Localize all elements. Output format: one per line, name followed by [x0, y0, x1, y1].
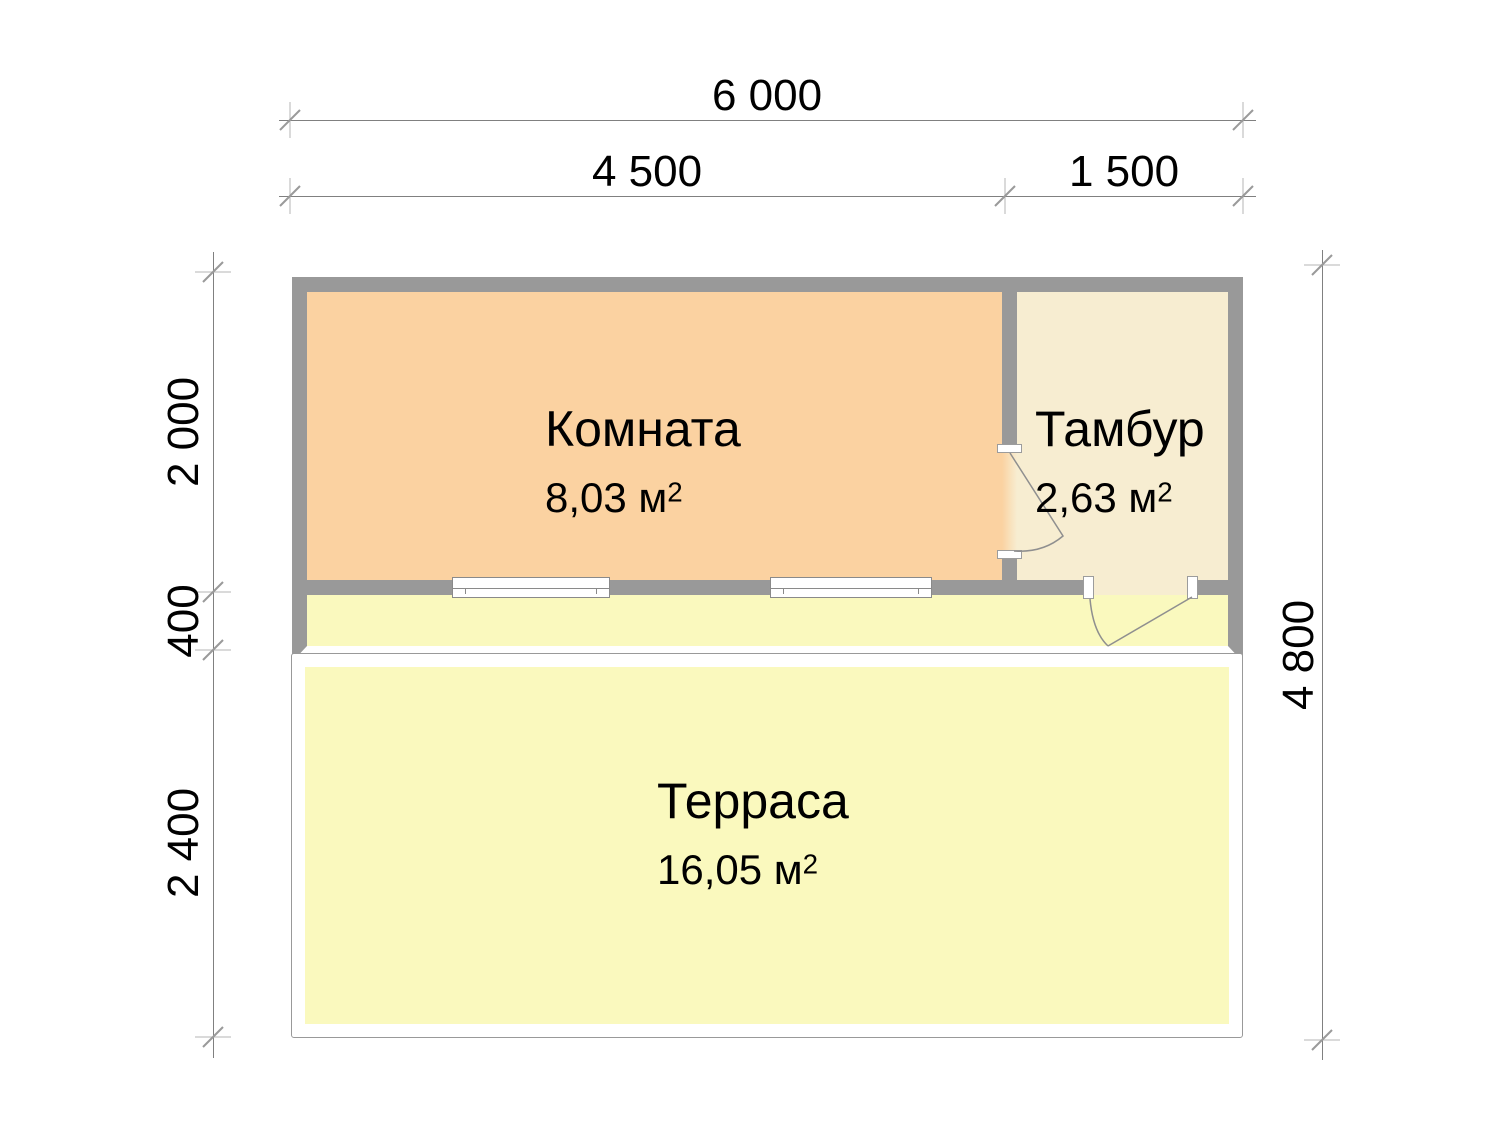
room-area-komnata: 8,03 м2 [545, 477, 683, 519]
area-superscript: 2 [1157, 476, 1172, 507]
window-frame-tick [783, 588, 784, 595]
door-jamb [1187, 576, 1198, 599]
window-frame-tick [596, 588, 597, 595]
dim-label-komnata-depth: 2 000 [162, 377, 206, 487]
wall-left [292, 277, 307, 662]
area-value: 8,03 м [545, 474, 667, 521]
area-superscript: 2 [667, 476, 682, 507]
dim-label-terrace-depth: 2 400 [162, 788, 206, 898]
room-label-tambur: Тамбур [1035, 404, 1205, 454]
wall-right [1228, 277, 1243, 662]
dim-label-komnata-span: 4 500 [592, 150, 702, 194]
dim-label-overall-width: 6 000 [712, 74, 822, 118]
door-jamb [997, 550, 1022, 559]
window-glass-line [771, 588, 931, 589]
floor-plan-canvas: 6 000 4 500 1 500 2 000 400 2 400 4 800 … [0, 0, 1500, 1125]
room-label-terrasa: Терраса [657, 776, 849, 826]
door-opening-tambur-terrace [1093, 579, 1187, 595]
window-frame-tick [465, 588, 466, 595]
window [452, 577, 610, 598]
room-area-terrasa: 16,05 м2 [657, 849, 818, 891]
room-area-tambur: 2,63 м2 [1035, 477, 1173, 519]
porch-strip [307, 595, 1228, 646]
area-value: 2,63 м [1035, 474, 1157, 521]
room-label-komnata: Комната [545, 404, 741, 454]
window [770, 577, 932, 598]
window-frame-tick [918, 588, 919, 595]
area-superscript: 2 [803, 848, 818, 879]
door-opening-komnata-tambur [1002, 453, 1017, 550]
wall-top [292, 277, 1243, 292]
dim-label-tambur-span: 1 500 [1069, 150, 1179, 194]
door-jamb [997, 444, 1022, 453]
area-value: 16,05 м [657, 846, 803, 893]
door-jamb [1083, 576, 1094, 599]
window-glass-line [453, 588, 609, 589]
dim-label-porch-depth: 400 [162, 584, 206, 657]
dim-label-overall-depth: 4 800 [1277, 600, 1321, 710]
